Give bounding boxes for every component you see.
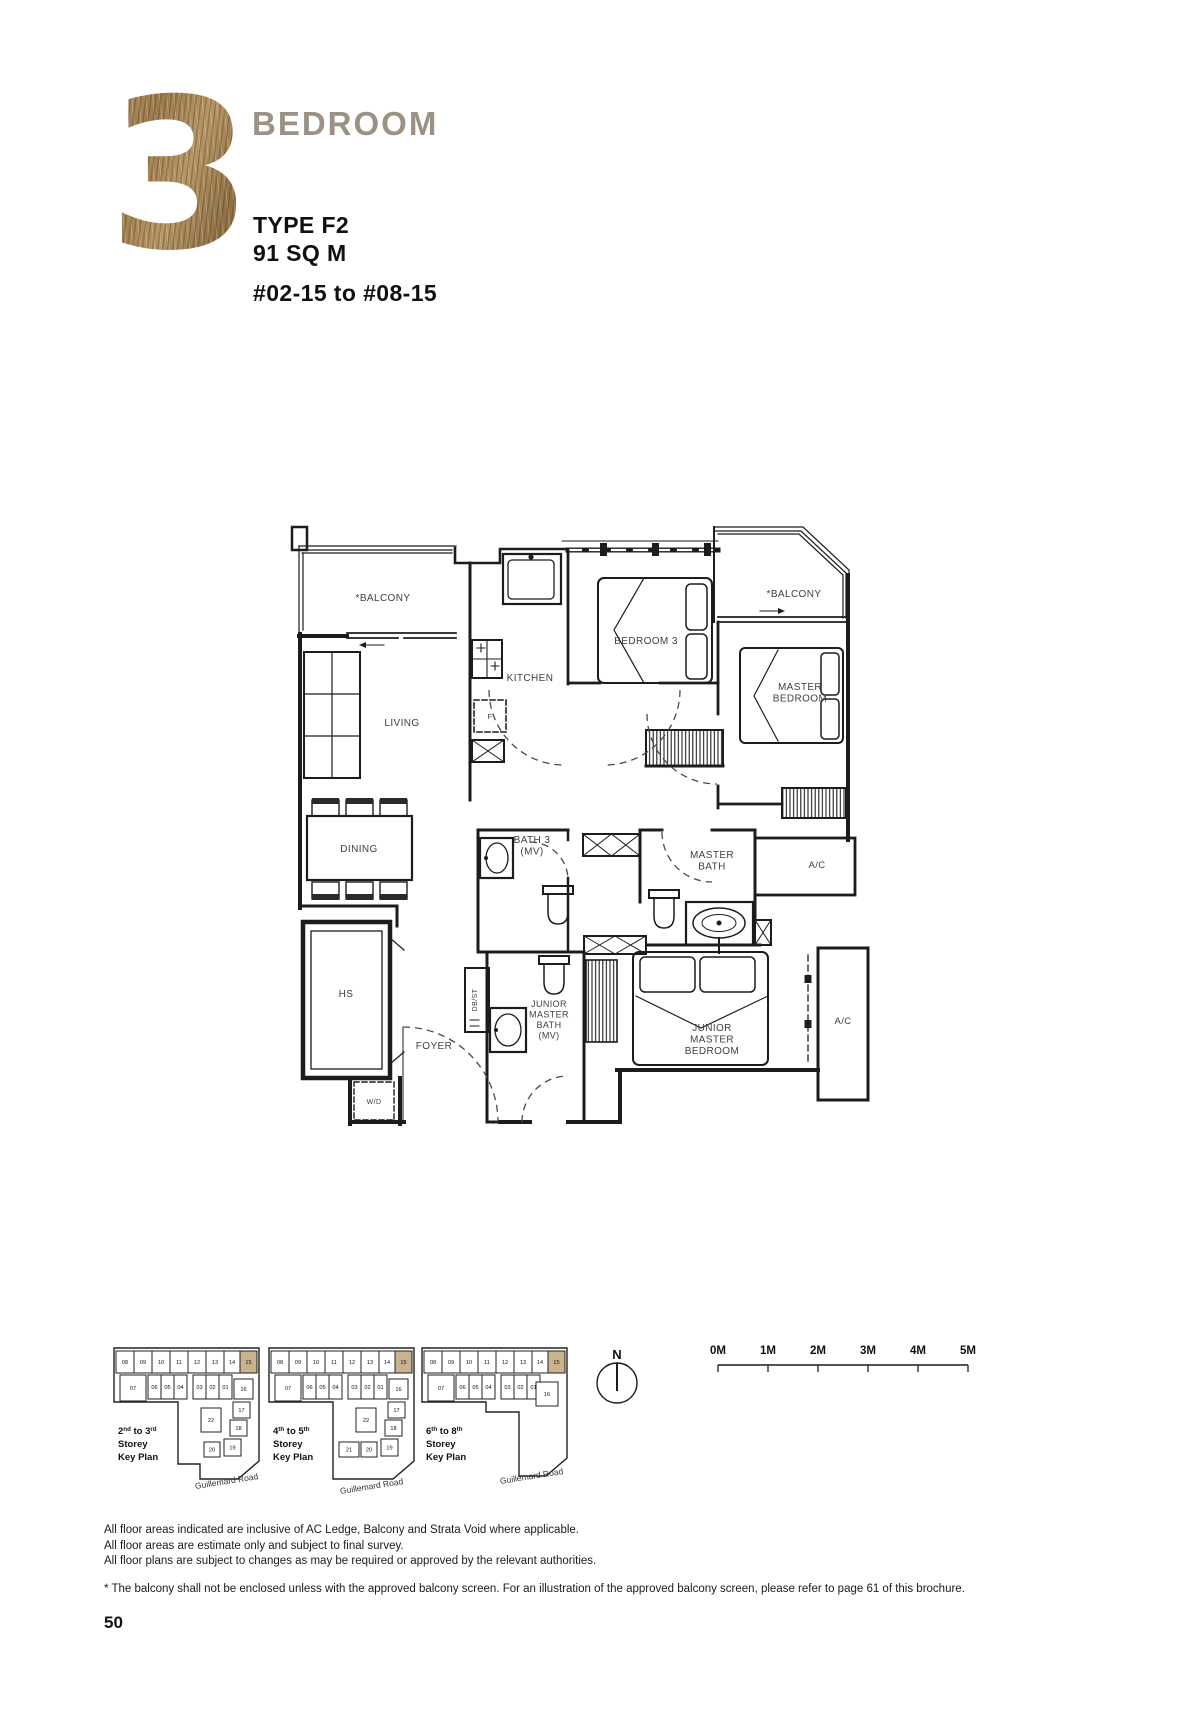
keyplan-unit-number: 08: [122, 1360, 128, 1366]
floor-plan: *BALCONYKITCHENBEDROOM 3*BALCONYMASTERBE…: [262, 470, 872, 1160]
scale-label: 4M: [910, 1345, 926, 1357]
brochure-page: 3 BEDROOM TYPE F2 91 SQ M #02-15 to #08-…: [0, 0, 1181, 1713]
keyplan-title: Key Plan: [273, 1452, 313, 1463]
room-label: JUNIORMASTERBEDROOM: [685, 1023, 739, 1057]
keyplan-unit-number: 17: [393, 1408, 399, 1414]
keyplan-title: 4th to 5th: [273, 1426, 310, 1437]
room-label: JUNIORMASTERBATH(MV): [529, 999, 569, 1041]
keyplan-unit-number: 18: [390, 1426, 396, 1432]
keyplan-unit-number: 20: [209, 1448, 215, 1454]
room-label: BATH 3(MV): [514, 835, 551, 858]
road-label: Guillemard Road: [194, 1471, 259, 1491]
keyplan-unit-number: 07: [285, 1386, 291, 1392]
footnote-line: All floor plans are subject to changes a…: [104, 1554, 596, 1570]
keyplan-unit-number: 16: [240, 1387, 246, 1393]
bedroom-count-numeral: 3: [108, 72, 253, 280]
storey-key-plan: 080910111213141507060504030201166th to 8…: [420, 1346, 585, 1504]
keyplan-unit-number: 06: [306, 1385, 312, 1391]
keyplan-unit-number: 05: [164, 1385, 170, 1391]
room-label: A/C: [834, 1016, 851, 1027]
scale-bar: 0M1M2M3M4M5M: [690, 1338, 1000, 1382]
room-label: LIVING: [384, 718, 419, 729]
keyplan-unit-number: 19: [386, 1446, 392, 1452]
keyplan-unit-number: 18: [235, 1426, 241, 1432]
room-label: FOYER: [416, 1041, 452, 1052]
storey-key-plan: 0809101112131415070605040302011617182219…: [112, 1346, 277, 1504]
room-label: MASTERBEDROOM: [773, 682, 827, 705]
page-title: BEDROOM: [252, 105, 438, 143]
keyplan-unit-number: 13: [212, 1360, 218, 1366]
keyplan-unit-number: 10: [313, 1360, 319, 1366]
keyplan-title: Key Plan: [118, 1452, 158, 1463]
keyplan-unit-number: 10: [158, 1360, 164, 1366]
footnotes: All floor areas indicated are inclusive …: [104, 1523, 596, 1570]
keyplan-unit-number: 02: [364, 1385, 370, 1391]
room-label: MASTERBATH: [690, 850, 734, 873]
keyplan-unit-number: 20: [366, 1448, 372, 1454]
keyplan-unit-number: 06: [459, 1385, 465, 1391]
road-label: Guillemard Road: [499, 1466, 564, 1486]
room-label: DINING: [340, 844, 377, 855]
keyplan-unit-number: 03: [504, 1385, 510, 1391]
keyplan-unit-number: 21: [346, 1448, 352, 1454]
keyplan-unit-number: 16: [395, 1387, 401, 1393]
keyplan-unit-number: 14: [229, 1360, 235, 1366]
keyplan-unit-number: 01: [377, 1385, 383, 1391]
keyplan-unit-number: 19: [229, 1446, 235, 1452]
unit-range: #02-15 to #08-15: [253, 280, 437, 307]
keyplan-unit-number: 22: [208, 1418, 214, 1424]
room-label: DB/ST: [472, 988, 479, 1011]
room-label: *BALCONY: [356, 593, 411, 604]
keyplan-unit-number: 11: [484, 1360, 490, 1366]
keyplan-title: Storey: [426, 1439, 456, 1450]
storey-key-plan: 0809101112131415070605040302011617182219…: [267, 1346, 432, 1504]
scale-label: 3M: [860, 1345, 876, 1357]
keyplan-unit-number: 03: [351, 1385, 357, 1391]
keyplan-title: 6th to 8th: [426, 1426, 463, 1437]
room-label: A/C: [808, 860, 825, 871]
keyplan-unit-number: 15: [553, 1360, 559, 1366]
keyplan-unit-number: 06: [151, 1385, 157, 1391]
keyplan-unit-number: 13: [367, 1360, 373, 1366]
keyplan-unit-number: 22: [363, 1418, 369, 1424]
keyplan-unit-number: 08: [277, 1360, 283, 1366]
keyplan-unit-number: 13: [520, 1360, 526, 1366]
keyplan-unit-number: 05: [319, 1385, 325, 1391]
room-label: W/D: [367, 1099, 382, 1106]
keyplan-unit-number: 04: [332, 1385, 338, 1391]
keyplan-unit-number: 12: [349, 1360, 355, 1366]
keyplan-unit-number: 14: [537, 1360, 543, 1366]
footnote-line: All floor areas indicated are inclusive …: [104, 1523, 596, 1539]
scale-label: 2M: [810, 1345, 826, 1357]
keyplan-unit-number: 14: [384, 1360, 390, 1366]
keyplan-unit-number: 12: [194, 1360, 200, 1366]
keyplan-unit-number: 15: [245, 1360, 251, 1366]
room-label: *BALCONY: [767, 589, 822, 600]
north-label: N: [612, 1347, 621, 1362]
keyplan-unit-number: 04: [485, 1385, 491, 1391]
keyplan-title: Storey: [273, 1439, 303, 1450]
keyplan-title: 2nd to 3rd: [118, 1426, 157, 1437]
room-label: KITCHEN: [507, 673, 554, 684]
keyplan-unit-number: 17: [238, 1408, 244, 1414]
keyplan-unit-number: 07: [130, 1386, 136, 1392]
unit-type: TYPE F2: [253, 211, 349, 239]
keyplan-unit-number: 09: [295, 1360, 301, 1366]
north-compass: N: [585, 1340, 655, 1410]
unit-area: 91 SQ M: [253, 239, 349, 267]
keyplan-unit-number: 11: [176, 1360, 182, 1366]
scale-label: 1M: [760, 1345, 776, 1357]
room-label: F: [488, 712, 493, 721]
footnote-line: All floor areas are estimate only and su…: [104, 1539, 596, 1555]
keyplan-unit-number: 07: [438, 1386, 444, 1392]
balcony-note: * The balcony shall not be enclosed unle…: [104, 1583, 965, 1595]
keyplan-unit-number: 11: [331, 1360, 337, 1366]
keyplan-unit-number: 12: [502, 1360, 508, 1366]
keyplan-unit-number: 16: [544, 1392, 550, 1398]
room-label: BEDROOM 3: [614, 636, 678, 647]
keyplan-title: Key Plan: [426, 1452, 466, 1463]
keyplan-unit-number: 09: [448, 1360, 454, 1366]
keyplan-unit-number: 09: [140, 1360, 146, 1366]
keyplan-unit-number: 10: [466, 1360, 472, 1366]
scale-label: 0M: [710, 1345, 726, 1357]
keyplan-unit-number: 08: [430, 1360, 436, 1366]
room-label: HS: [339, 989, 354, 1000]
keyplan-unit-number: 05: [472, 1385, 478, 1391]
unit-type-block: TYPE F2 91 SQ M: [253, 211, 349, 267]
keyplan-unit-number: 03: [196, 1385, 202, 1391]
keyplan-unit-number: 01: [222, 1385, 228, 1391]
keyplan-unit-number: 02: [517, 1385, 523, 1391]
keyplan-title: Storey: [118, 1439, 148, 1450]
keyplan-unit-number: 02: [209, 1385, 215, 1391]
keyplan-unit-number: 15: [400, 1360, 406, 1366]
page-number: 50: [104, 1613, 123, 1633]
scale-label: 5M: [960, 1345, 976, 1357]
unit-walls: [292, 527, 868, 1124]
keyplan-unit-number: 04: [177, 1385, 183, 1391]
